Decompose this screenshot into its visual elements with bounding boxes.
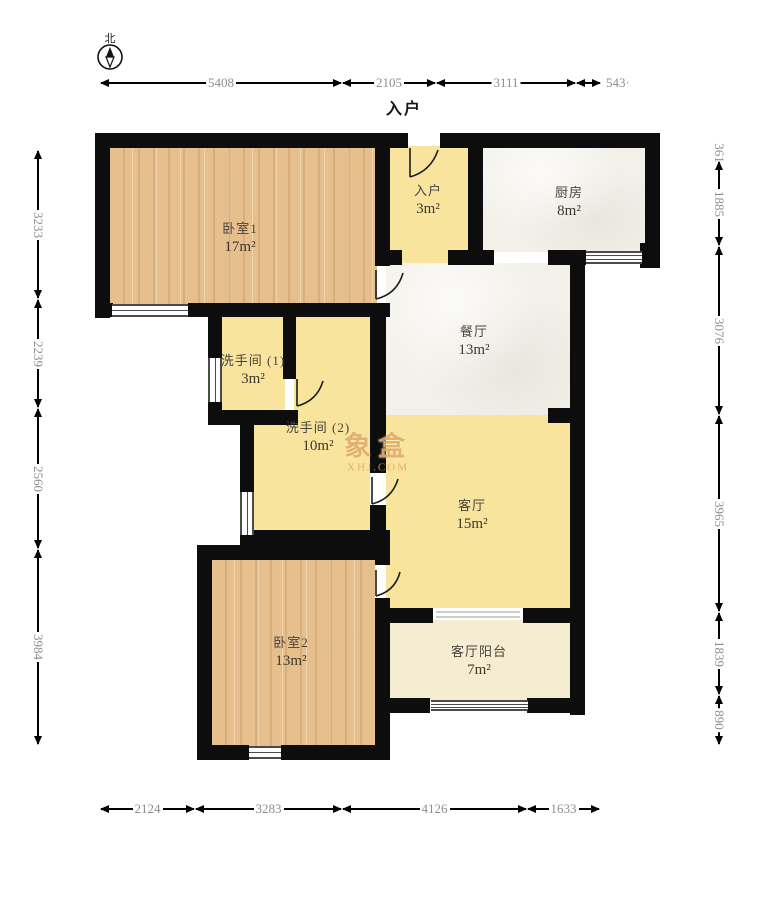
wall-segment (645, 133, 660, 247)
room-name: 餐厅 (458, 321, 489, 340)
window-bedroom-1 (112, 304, 188, 317)
wall-segment (95, 133, 110, 318)
wall-segment (388, 250, 402, 265)
wall-segment (640, 243, 660, 268)
wall-segment (548, 408, 585, 423)
room-area: 8m² (555, 203, 583, 220)
room-label-entry: 入户 3m² (414, 180, 442, 218)
wall-segment (375, 698, 430, 713)
dimension-segment-top: 2105 (342, 74, 436, 92)
dimension-segment-right: 1885 (710, 161, 728, 246)
room-area: 13m² (458, 342, 489, 359)
balcony-slider-lines (436, 612, 520, 617)
wall-segment (197, 745, 249, 760)
wall-segment (95, 303, 113, 317)
window-bedroom-2 (249, 746, 281, 759)
wall-segment (95, 133, 408, 148)
dimension-value: 2239 (30, 339, 46, 369)
dimension-value: 1885 (711, 189, 727, 219)
floor-plan-page: 北 卧室1 17m² 入户 3m² 厨房 8m² 餐厅 13m² 洗手间 (1)… (0, 0, 758, 899)
room-name: 入户 (414, 180, 442, 199)
room-label-bathroom-2: 洗手间 (2) 10m² (286, 417, 350, 455)
wall-segment (570, 250, 585, 715)
wall-segment (197, 545, 390, 560)
wall-segment (240, 410, 254, 494)
dimension-segment-right: 361 (710, 145, 728, 161)
room-name: 厨房 (555, 182, 583, 201)
dimension-value: 3965 (711, 499, 727, 529)
room-label-balcony: 客厅阳台 7m² (451, 641, 507, 679)
dimension-segment-left: 2239 (29, 299, 47, 408)
dimension-segment-top: 5408 (100, 74, 342, 92)
dimension-segment-bottom: 1633 (527, 800, 600, 818)
window-balcony-railing (431, 700, 528, 711)
wall-segment (240, 530, 390, 545)
room-name: 客厅阳台 (451, 641, 507, 660)
compass-north-label: 北 (105, 32, 116, 45)
room-bathroom-2-floor (294, 315, 370, 425)
dimension-segment-top: 3111 (436, 74, 576, 92)
dimension-value: 3233 (30, 210, 46, 240)
room-name: 卧室1 (222, 218, 258, 237)
room-area: 10m² (286, 438, 350, 455)
compass-icon (98, 45, 122, 69)
wall-segment (468, 146, 483, 252)
dimension-value: 2560 (30, 464, 46, 494)
room-label-dining-room: 餐厅 13m² (458, 321, 489, 359)
dimension-value: 1839 (711, 639, 727, 669)
room-label-kitchen: 厨房 8m² (555, 182, 583, 220)
wall-segment (197, 545, 212, 760)
dimension-segment-left: 2560 (29, 408, 47, 549)
room-name: 卧室2 (273, 632, 309, 651)
dimension-segment-right: 1839 (710, 612, 728, 695)
room-area: 15m² (456, 516, 487, 533)
dimension-segment-right: 3076 (710, 246, 728, 415)
room-area: 3m² (414, 201, 442, 218)
dimension-value: 890 (711, 708, 727, 732)
room-name: 洗手间 (2) (286, 417, 350, 436)
dimension-segment-bottom: 4126 (342, 800, 527, 818)
wall-segment (523, 608, 585, 623)
dimension-segment-left: 3984 (29, 549, 47, 745)
dimension-segment-right: 890 (710, 695, 728, 745)
dimension-value: 4126 (420, 801, 450, 817)
wall-segment (375, 146, 390, 266)
room-area: 3m² (221, 371, 285, 388)
wall-segment (375, 608, 433, 623)
dimension-segment-left: 3233 (29, 150, 47, 299)
dimension-value: 2124 (133, 801, 163, 817)
wall-segment (370, 315, 386, 473)
dimension-segment-right: 3965 (710, 415, 728, 612)
entry-direction-label: 入户 (386, 95, 422, 119)
room-label-living-room: 客厅 15m² (456, 495, 487, 533)
window-bathroom-2 (240, 492, 254, 535)
dimension-segment-bottom: 3283 (195, 800, 342, 818)
dimension-segment-top: 543· (576, 74, 601, 92)
room-area: 7m² (451, 662, 507, 679)
dimension-value: 2105 (374, 75, 404, 91)
room-name: 客厅 (456, 495, 487, 514)
room-label-bathroom-1: 洗手间 (1) 3m² (221, 350, 285, 388)
dimension-value: 3984 (30, 632, 46, 662)
room-area: 13m² (273, 653, 309, 670)
window-kitchen (586, 251, 642, 264)
dimension-segment-bottom: 2124 (100, 800, 195, 818)
dimension-value: 1633 (549, 801, 579, 817)
room-area: 17m² (222, 239, 258, 256)
dimension-value: 5408 (206, 75, 236, 91)
room-label-bedroom-2: 卧室2 13m² (273, 632, 309, 670)
dimension-value: 3283 (254, 801, 284, 817)
wall-segment (281, 745, 390, 760)
wall-segment (527, 698, 585, 713)
dimension-value: 3076 (711, 316, 727, 346)
room-name: 洗手间 (1) (221, 350, 285, 369)
wall-segment (448, 250, 494, 265)
room-label-bedroom-1: 卧室1 17m² (222, 218, 258, 256)
dimension-value: 3111 (491, 75, 520, 91)
dimension-value: 543· (604, 75, 632, 91)
wall-segment (375, 545, 390, 565)
